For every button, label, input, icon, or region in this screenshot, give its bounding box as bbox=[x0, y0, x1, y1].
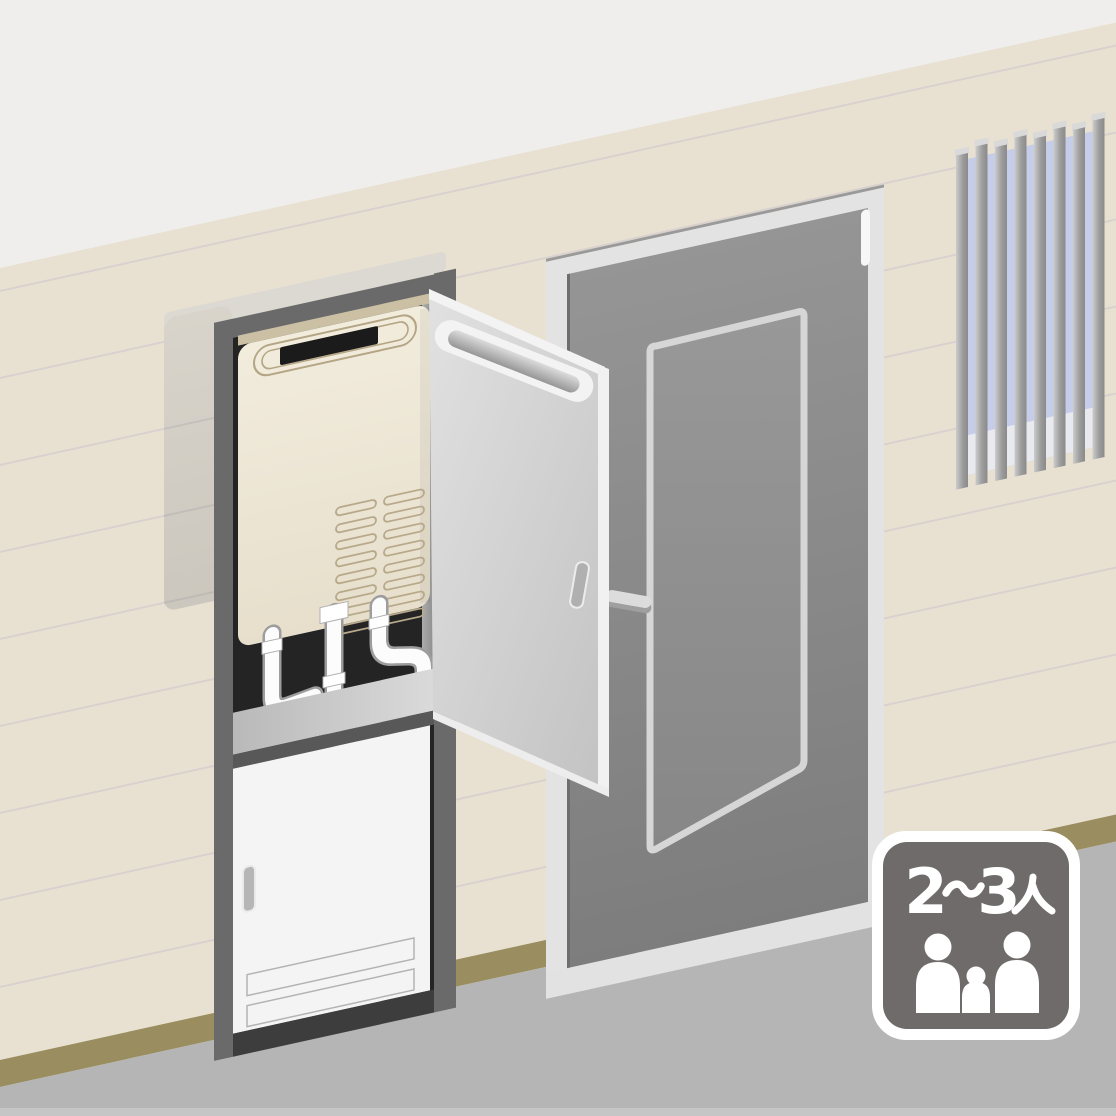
water-heater bbox=[238, 293, 430, 656]
ps-open-door bbox=[429, 289, 609, 797]
ps-open-door-edge-right bbox=[598, 365, 609, 789]
walkway-edge bbox=[0, 1108, 1116, 1116]
badge-max-count: 3 bbox=[977, 855, 1020, 928]
meter-box bbox=[233, 725, 434, 1057]
capacity-badge: 2 3 bbox=[872, 831, 1080, 1040]
illustration-canvas: 2 3 bbox=[0, 0, 1116, 1116]
scene-svg: 2 3 bbox=[0, 0, 1116, 1116]
window-with-grille bbox=[955, 112, 1106, 490]
meter-box-handle bbox=[243, 865, 255, 913]
ps-frame-left bbox=[214, 319, 233, 1061]
door-hinge-capsule bbox=[861, 209, 870, 267]
door-recessed-panel bbox=[650, 312, 804, 851]
badge-min-count: 2 bbox=[904, 855, 947, 928]
